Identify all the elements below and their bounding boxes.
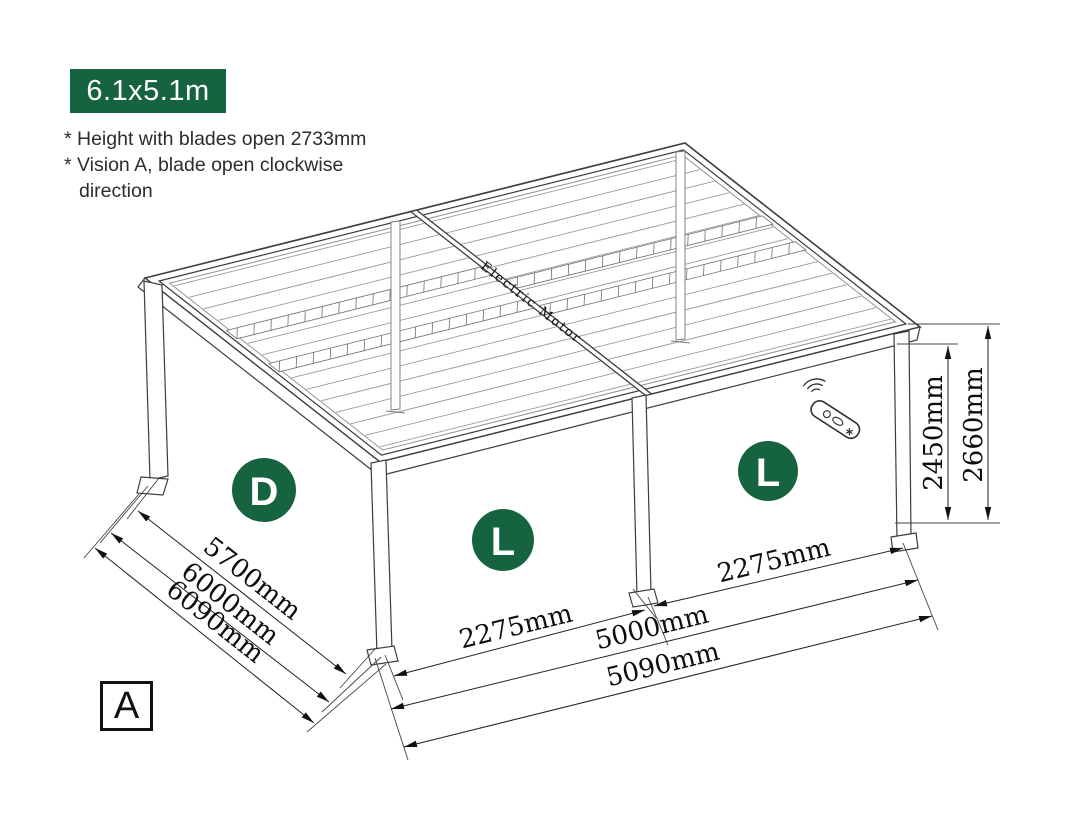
svg-text:L: L (491, 520, 515, 564)
pergola-dimension-diagram: 6.1x5.1m * Height with blades open 2733m… (0, 0, 1080, 831)
technical-drawing: Electric Motor 5700mm 6000mm 6090mm 2275… (0, 0, 1080, 831)
dim-label-2275-right: 2275mm (714, 533, 833, 590)
marker-d-left-wall: D (232, 458, 296, 522)
svg-text:L: L (756, 451, 780, 495)
dim-label-2450: 2450mm (919, 375, 949, 490)
svg-text:D: D (250, 470, 279, 514)
marker-l-front-wall: L (472, 509, 534, 571)
signal-waves-icon (803, 373, 825, 395)
dim-label-2275-front: 2275mm (456, 599, 575, 656)
remote-control-icon (793, 373, 872, 442)
dim-label-2660: 2660mm (959, 367, 989, 482)
marker-l-right-wall: L (738, 441, 798, 501)
